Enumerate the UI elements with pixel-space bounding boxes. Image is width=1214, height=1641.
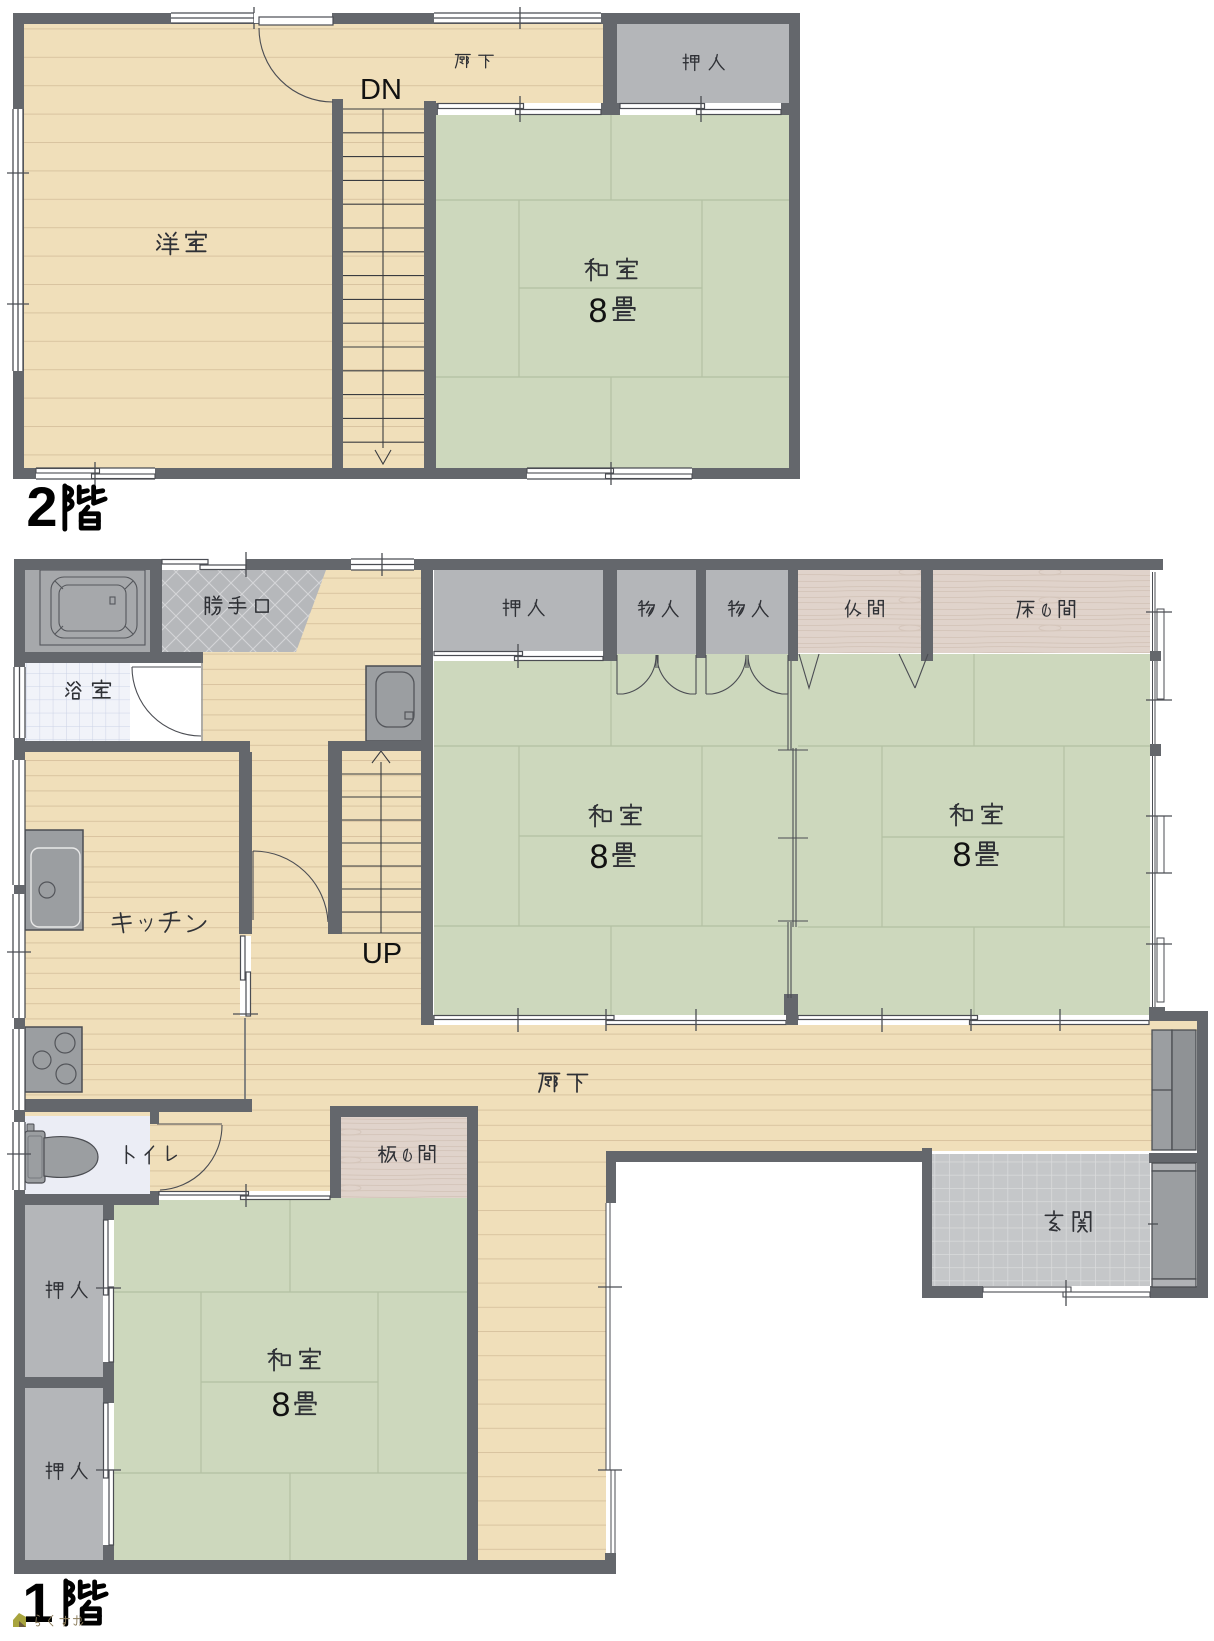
- svg-text:8: 8: [590, 838, 609, 876]
- svg-text:1: 1: [22, 1571, 53, 1634]
- svg-text:UP: UP: [362, 938, 402, 970]
- svg-text:8: 8: [589, 292, 608, 330]
- svg-text:8: 8: [953, 836, 972, 874]
- svg-text:2: 2: [26, 475, 57, 538]
- svg-text:8: 8: [272, 1386, 291, 1424]
- svg-text:DN: DN: [360, 74, 402, 106]
